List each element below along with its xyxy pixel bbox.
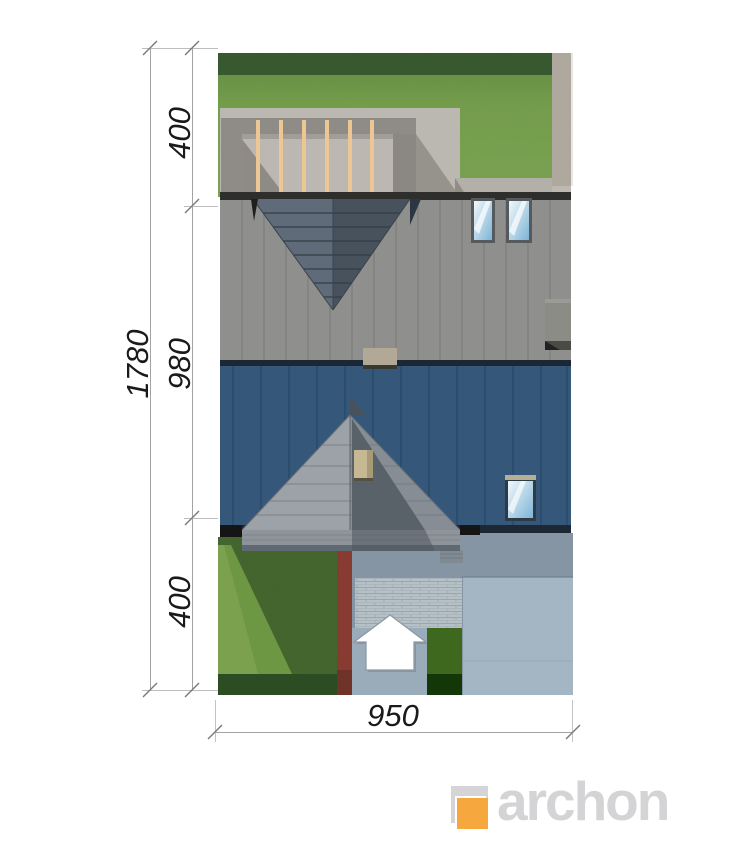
- doormat: [440, 550, 463, 563]
- dim-label-total-depth: 1780: [120, 330, 156, 399]
- gravel-strip: [552, 53, 573, 197]
- skylight-gray-roof-left: [471, 198, 495, 243]
- archon-logo: archon: [447, 778, 707, 838]
- chimney-right: [545, 299, 571, 350]
- logo-square-orange-icon: [457, 798, 488, 829]
- chimney-ridge: [363, 348, 397, 369]
- dim-label-segment-middle: 980: [162, 338, 198, 390]
- roof-plan-rendering: [218, 53, 573, 695]
- dim-label-segment-top: 400: [162, 107, 198, 159]
- chimney-porch: [354, 450, 373, 481]
- dim-label-segment-bottom: 400: [162, 576, 198, 628]
- dim-label-plot-width: 950: [367, 698, 419, 734]
- skylight-blue-roof: [505, 475, 536, 521]
- gray-roof: [220, 198, 571, 362]
- brick-walkway: [355, 578, 462, 628]
- site-plan-page: 1780 400 980 400 950 archon: [0, 0, 734, 854]
- skylight-gray-roof-right: [506, 198, 532, 243]
- logo-text: archon: [497, 771, 668, 831]
